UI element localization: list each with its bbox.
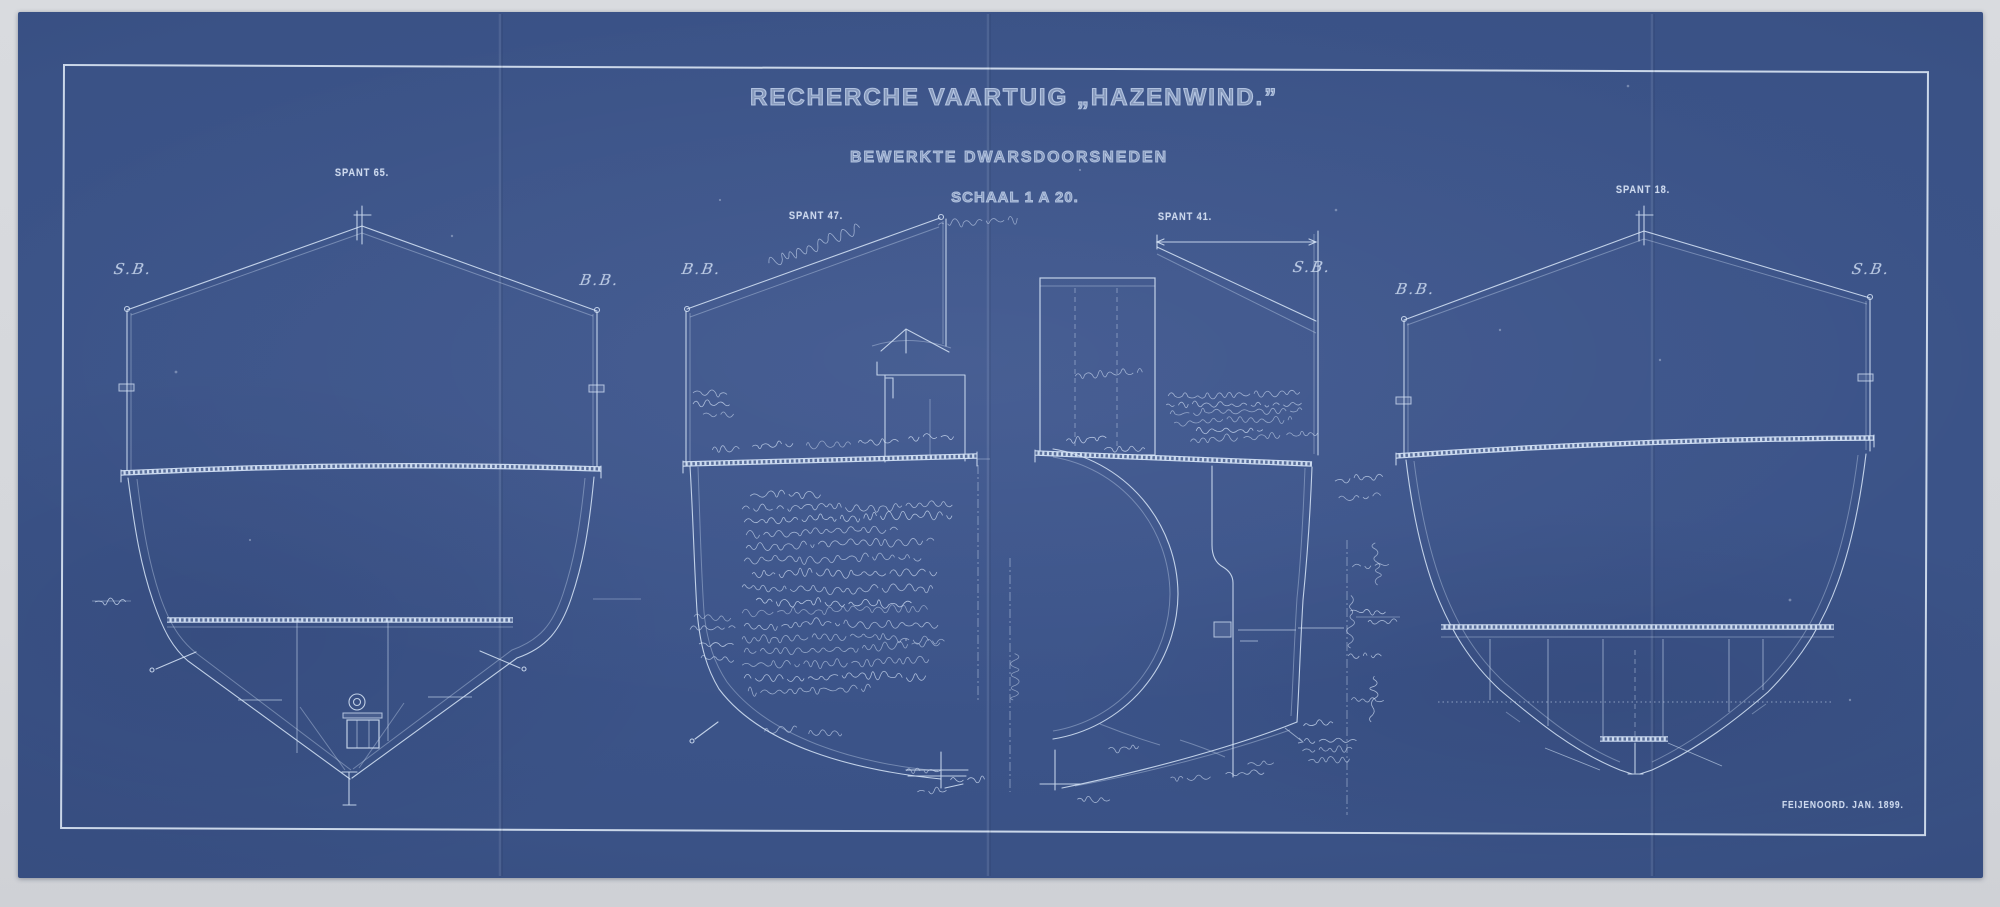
bilge-keel (695, 722, 718, 739)
page-title: RECHERCHE VAARTUIG „HAZENWIND.” (750, 84, 1260, 112)
spant-65-drawing (92, 206, 641, 805)
fold-lines (500, 14, 1654, 876)
page-subtitle: BEWERKTE DWARSDOORSNEDEN (850, 149, 1145, 167)
mast-fitting-icon (1636, 206, 1653, 245)
bilge-keel (156, 651, 520, 669)
section-label-spant-47: SPANT 47. (782, 210, 850, 222)
bottom-shell (1062, 722, 1297, 788)
spant-41-drawing (1035, 231, 1347, 815)
hull-side (1297, 467, 1312, 722)
scale-note: SCHAAL 1 A 20. (945, 189, 1085, 206)
section-label-spant-41: SPANT 41. (1151, 211, 1219, 223)
side-mark-bb-spant-18: B.B. (1394, 280, 1437, 298)
keel (1040, 750, 1080, 790)
side-mark-sb-spant-18: S.B. (1850, 260, 1891, 278)
waterline (92, 599, 641, 601)
hull-outline (128, 477, 594, 779)
side-mark-sb-spant-41: S.B. (1291, 258, 1332, 276)
side-mark-sb-spant-65: S.B. (112, 260, 153, 278)
blueprint-scan: RECHERCHE VAARTUIG „HAZENWIND.” BEWERKTE… (0, 0, 2000, 907)
deckhouse (1040, 278, 1155, 455)
deck-line (1396, 438, 1874, 456)
keel (1628, 743, 1643, 774)
boiler-outline (1053, 449, 1178, 739)
yard-signature: FEIJENOORD. JAN. 1899. (1782, 800, 1904, 811)
line-art (0, 0, 2000, 907)
spant-47-drawing (683, 215, 1010, 793)
keel (906, 752, 968, 788)
section-label-spant-18: SPANT 18. (1609, 184, 1677, 196)
section-label-spant-65: SPANT 65. (328, 167, 396, 179)
keel (342, 772, 357, 805)
hull-outline (1406, 454, 1866, 774)
mast-fitting-icon (354, 206, 371, 244)
side-mark-bb-spant-47: B.B. (680, 260, 723, 278)
pipe-fitting-icon (349, 694, 365, 710)
dust-specks (175, 85, 1852, 702)
dimension-arrow (1157, 235, 1316, 249)
side-mark-bb-spant-65: B.B. (578, 271, 621, 289)
hull-outline (690, 466, 941, 779)
